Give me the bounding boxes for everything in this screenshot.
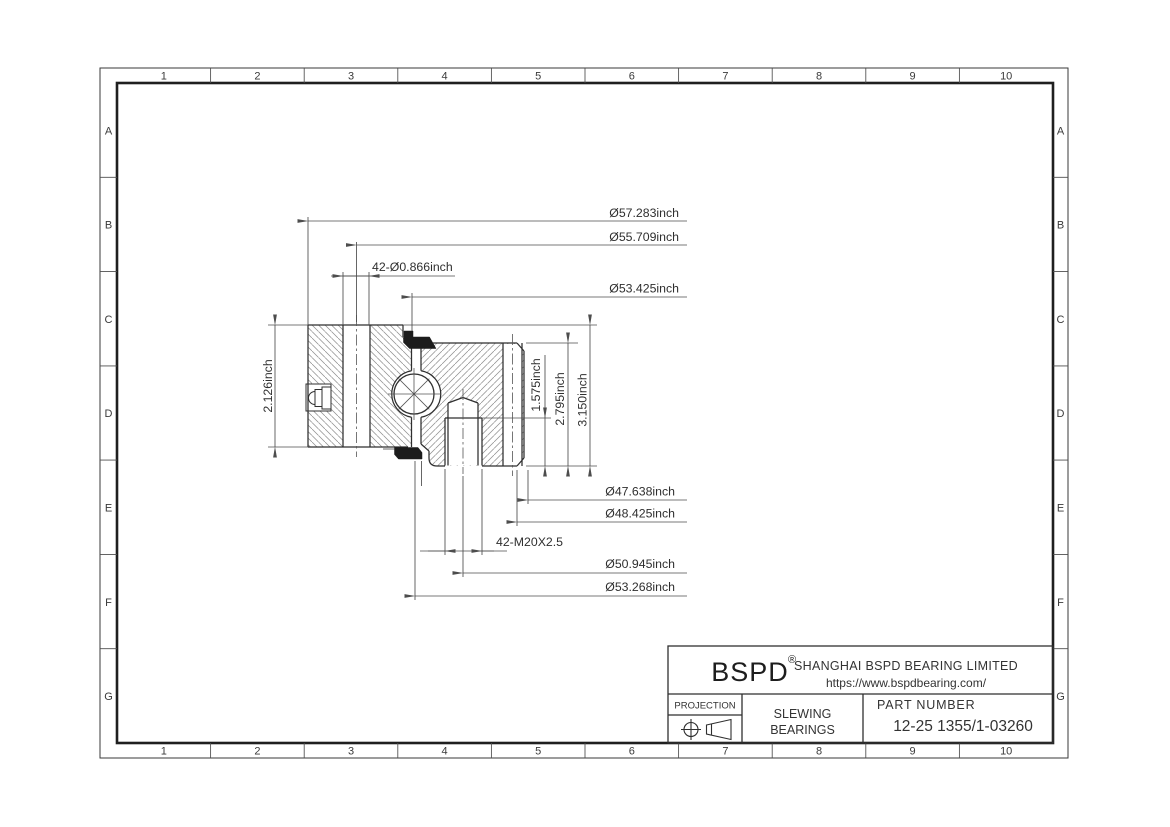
dim-outer-ring-bore: Ø48.425inch: [605, 507, 675, 521]
bearing-cross-section: [306, 315, 524, 476]
product-name-line1: SLEWING: [774, 707, 832, 721]
grid-col-label: 5: [535, 71, 541, 83]
dim-outer-mount-holes: 42-M20X2.5: [496, 535, 563, 549]
grid-col-label: 5: [535, 746, 541, 758]
grid-row-label: B: [1057, 220, 1064, 232]
projection-symbol-icon: [681, 719, 731, 740]
grid-col-label: 4: [442, 746, 448, 758]
grid-col-label: 3: [348, 71, 354, 83]
grid-column-labels-top: 1 2 3 4 5 6 7 8 9 10: [161, 71, 1013, 83]
grid-row-label: A: [1057, 125, 1065, 137]
grid-row-label: E: [1057, 503, 1064, 515]
dim-bore-diameter: Ø47.638inch: [605, 485, 675, 499]
grid-row-label: C: [1057, 314, 1065, 326]
projection-label: PROJECTION: [674, 701, 735, 712]
grid-col-label: 1: [161, 746, 167, 758]
grid-col-label: 8: [816, 746, 822, 758]
part-number-value: 12-25 1355/1-03260: [893, 718, 1033, 735]
dim-inner-mount-holes: 42-Ø0.866inch: [372, 260, 453, 274]
grid-row-label: F: [1057, 597, 1064, 609]
grid-row-label: D: [1057, 408, 1065, 420]
drawing-sheet: 1 2 3 4 5 6 7 8 9 10 1 2 3 4 5 6 7 8 9 1…: [0, 0, 1170, 827]
dim-outer-bolt-circle: Ø50.945inch: [605, 557, 675, 571]
dim-outer-diameter: Ø57.283inch: [609, 206, 679, 220]
grid-row-label: F: [105, 597, 112, 609]
dim-lower-raceway: Ø53.268inch: [605, 580, 675, 594]
grid-col-label: 1: [161, 71, 167, 83]
company-name: SHANGHAI BSPD BEARING LIMITED: [794, 659, 1018, 673]
grid-col-label: 10: [1000, 71, 1012, 83]
grid-ticks-top: [211, 68, 960, 83]
grid-row-label: C: [105, 314, 113, 326]
company-website: https://www.bspdbearing.com/: [826, 676, 987, 690]
engineering-drawing-canvas: 1 2 3 4 5 6 7 8 9 10 1 2 3 4 5 6 7 8 9 1…: [0, 0, 1170, 827]
grid-col-label: 6: [629, 746, 635, 758]
dim-upper-raceway: Ø53.425inch: [609, 282, 679, 296]
grid-row-labels-left: A B C D E F G: [104, 125, 113, 703]
grid-col-label: 8: [816, 71, 822, 83]
lower-seal: [395, 448, 423, 460]
grid-row-label: G: [1056, 691, 1065, 703]
grid-row-label: G: [104, 691, 113, 703]
dim-overall-height: 3.150inch: [576, 373, 590, 426]
dim-thread-depth: 1.575inch: [529, 358, 543, 411]
grid-col-label: 6: [629, 71, 635, 83]
dim-inner-ring-height: 2.126inch: [261, 359, 275, 412]
part-number-label: PART NUMBER: [877, 698, 975, 712]
grid-row-label: A: [105, 125, 113, 137]
grid-row-label: B: [105, 220, 112, 232]
grid-col-label: 2: [254, 746, 260, 758]
grid-row-label: D: [105, 408, 113, 420]
grid-row-labels-right: A B C D E F G: [1056, 125, 1065, 703]
dim-inner-bolt-circle: Ø55.709inch: [609, 230, 679, 244]
grid-col-label: 9: [910, 71, 916, 83]
company-logo: BSPD: [711, 657, 789, 687]
grid-col-label: 2: [254, 71, 260, 83]
dim-outer-ring-height: 2.795inch: [553, 372, 567, 425]
title-block: BSPD ® SHANGHAI BSPD BEARING LIMITED htt…: [668, 646, 1053, 743]
grid-column-labels-bottom: 1 2 3 4 5 6 7 8 9 10: [161, 746, 1013, 758]
grid-ticks-bottom: [211, 743, 960, 758]
grid-col-label: 7: [722, 746, 728, 758]
grid-col-label: 4: [442, 71, 448, 83]
grid-col-label: 9: [910, 746, 916, 758]
grid-col-label: 7: [722, 71, 728, 83]
grid-row-label: E: [105, 503, 112, 515]
grid-col-label: 3: [348, 746, 354, 758]
grid-col-label: 10: [1000, 746, 1012, 758]
product-name-line2: BEARINGS: [770, 723, 835, 737]
upper-seal: [404, 331, 437, 349]
